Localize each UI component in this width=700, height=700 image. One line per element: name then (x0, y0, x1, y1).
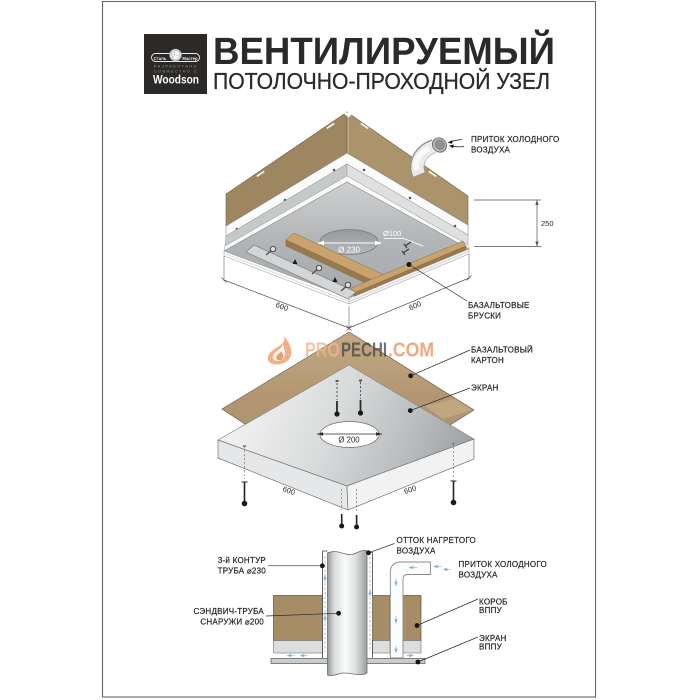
svg-text:PECHI: PECHI (341, 339, 387, 362)
svg-text:250: 250 (541, 219, 554, 228)
svg-text:ВППУ: ВППУ (479, 643, 503, 652)
svg-text:Мастер: Мастер (182, 56, 198, 61)
svg-text:ПРИТОК ХОЛОДНОГО: ПРИТОК ХОЛОДНОГО (471, 135, 560, 144)
svg-text:ОТТОК НАГРЕТОГО: ОТТОК НАГРЕТОГО (397, 536, 476, 545)
svg-text:ВОЗДУХА: ВОЗДУХА (459, 571, 499, 580)
svg-text:СОВМЕСТНО С: СОВМЕСТНО С (154, 69, 198, 74)
svg-text:Сталь: Сталь (154, 56, 167, 61)
svg-text:БАЗАЛЬТОВЫЙ: БАЗАЛЬТОВЫЙ (471, 346, 533, 355)
svg-text:Woodson: Woodson (153, 75, 199, 87)
svg-text:КАРТОН: КАРТОН (471, 356, 504, 365)
svg-text:СНАРУЖИ ⌀200: СНАРУЖИ ⌀200 (200, 618, 264, 627)
svg-text:ТРУБА ⌀230: ТРУБА ⌀230 (218, 567, 267, 576)
svg-text:Ø 200: Ø 200 (338, 436, 360, 445)
svg-text:.COM: .COM (388, 339, 434, 362)
svg-text:ПРИТОК ХОЛОДНОГО: ПРИТОК ХОЛОДНОГО (459, 560, 548, 569)
svg-text:СЭНДВИЧ-ТРУБА: СЭНДВИЧ-ТРУБА (193, 607, 264, 616)
svg-text:Ø 230: Ø 230 (338, 246, 360, 255)
svg-text:ЭКРАН: ЭКРАН (471, 384, 499, 393)
svg-text:ВОЗДУХА: ВОЗДУХА (397, 547, 437, 556)
svg-text:БАЗАЛЬТОВЫЕ: БАЗАЛЬТОВЫЕ (468, 301, 530, 310)
svg-text:ВППУ: ВППУ (479, 606, 503, 615)
svg-text:ВЕНТИЛИРУЕМЫЙ: ВЕНТИЛИРУЕМЫЙ (213, 28, 555, 73)
svg-text:ПОТОЛОЧНО-ПРОХОДНОЙ УЗЕЛ: ПОТОЛОЧНО-ПРОХОДНОЙ УЗЕЛ (213, 67, 550, 94)
svg-text:PRO: PRO (305, 339, 340, 362)
svg-text:БРУСКИ: БРУСКИ (468, 312, 501, 321)
svg-text:Ø100: Ø100 (383, 229, 401, 238)
svg-text:3-й КОНТУР: 3-й КОНТУР (218, 556, 266, 565)
svg-text:ВОЗДУХА: ВОЗДУХА (471, 146, 511, 155)
